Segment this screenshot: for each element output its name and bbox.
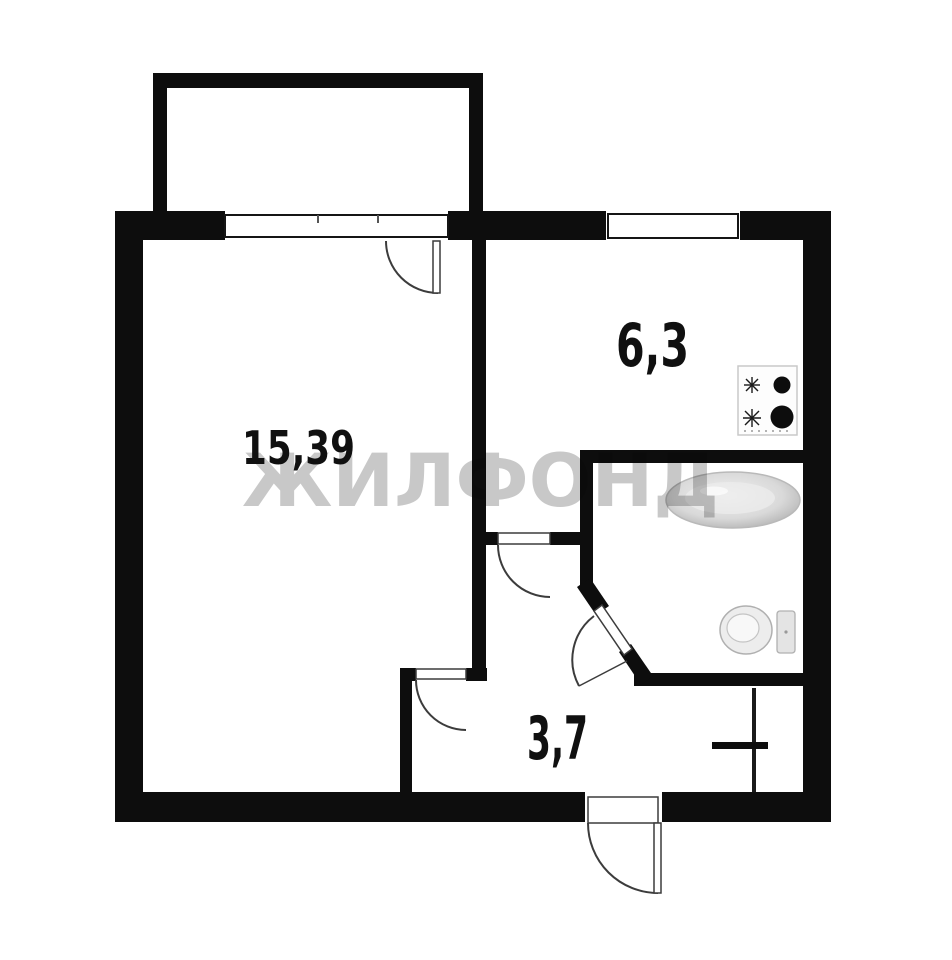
floorplan-canvas: ЖИЛФОНД 15,39 6,3 3,7 [0, 0, 952, 960]
wall-room-door-stub-r [466, 668, 487, 681]
wall-kitchen-door-stub-r [550, 532, 580, 545]
balcony-window [225, 215, 448, 237]
wall-balcony-top [153, 73, 483, 88]
stove-burner-large [771, 406, 794, 429]
entrance-threshold [588, 797, 658, 823]
stove-icon [738, 366, 797, 435]
wall-outer-left [115, 211, 143, 822]
stove-burner-star [743, 409, 761, 427]
balcony-door-leaf [433, 241, 440, 293]
wall-outer-right [803, 211, 831, 822]
floorplan-page: ЖИЛФОНД 15,39 6,3 3,7 [0, 0, 952, 960]
wall-balcony-left [153, 73, 167, 213]
stove-burner-star [744, 377, 760, 393]
entrance-door-leaf [654, 823, 661, 893]
wall-bathroom-bottom [634, 673, 803, 686]
room-label-kitchen: 6,3 [616, 311, 689, 381]
living-room-door-leaf [416, 669, 466, 679]
wall-balcony-right [469, 73, 483, 213]
kitchen-window [608, 214, 738, 238]
wall-hallway-left [400, 668, 412, 794]
room-label-hallway: 3,7 [527, 704, 588, 774]
wall-outer-bottom [115, 792, 831, 822]
stove-burner-small [774, 377, 791, 394]
room-label-living-room: 15,39 [242, 421, 355, 475]
wall-kitchen-door-stub-l [486, 532, 498, 545]
kitchen-door-leaf [498, 533, 550, 544]
closet-shelf-mark [712, 742, 768, 749]
toilet-icon [720, 606, 795, 654]
